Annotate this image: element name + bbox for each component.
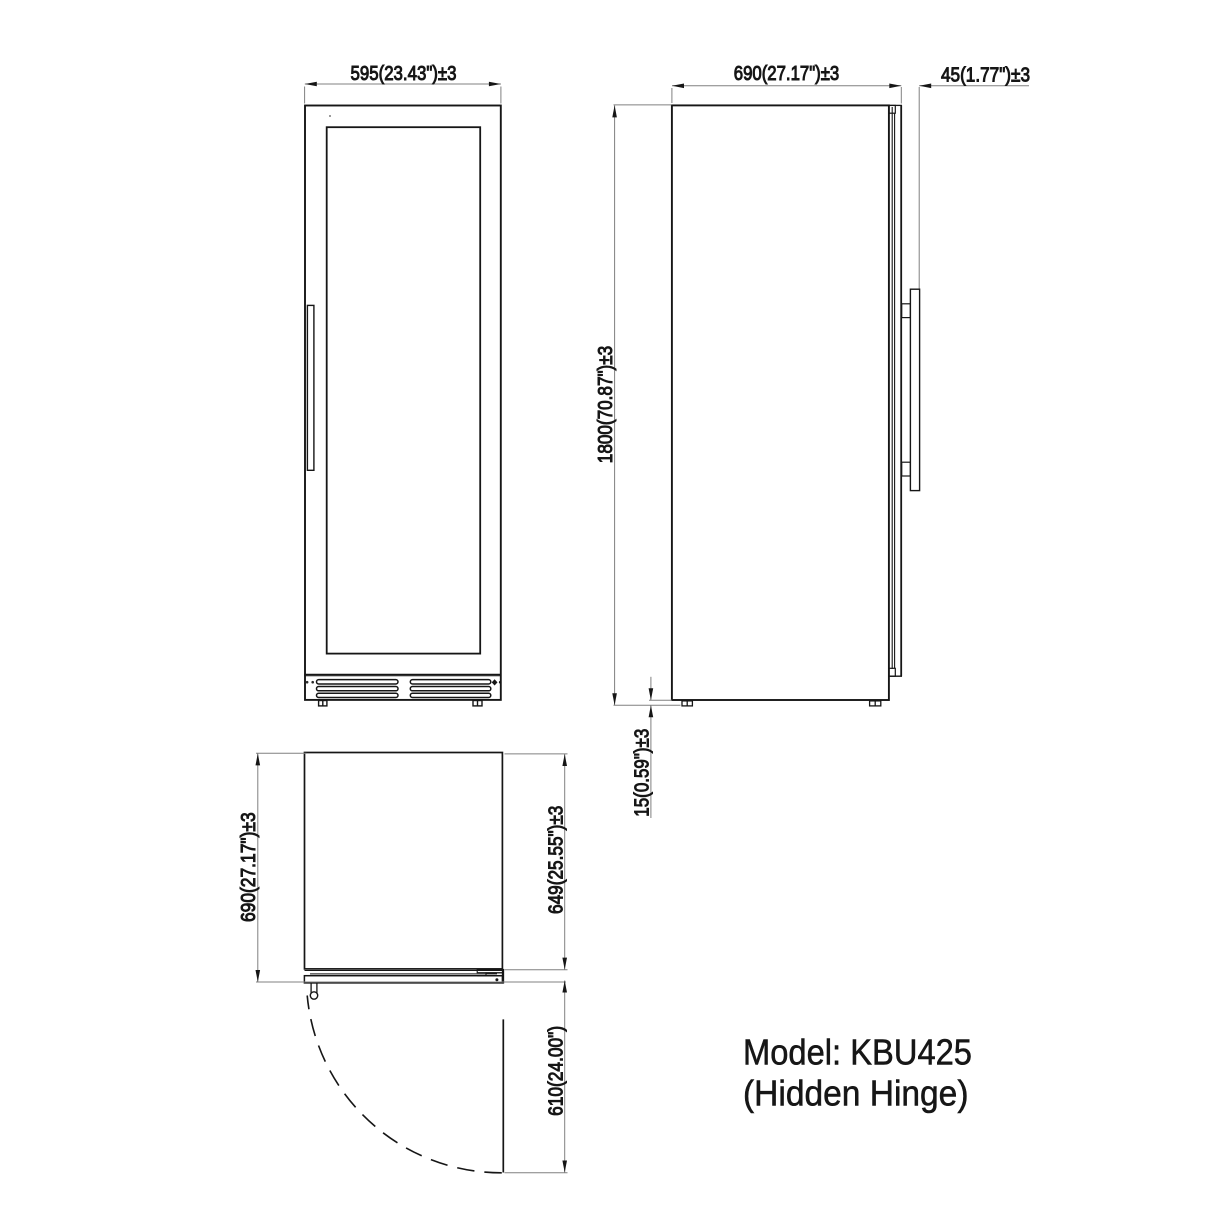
svg-text:690(27.17")±3: 690(27.17")±3 [237,812,260,922]
svg-text:1800(70.87")±3: 1800(70.87")±3 [594,346,617,463]
svg-text:(Hidden Hinge): (Hidden Hinge) [743,1073,969,1114]
svg-text:45(1.77")±3: 45(1.77")±3 [941,65,1030,87]
svg-text:610(24.00"): 610(24.00") [544,1026,567,1116]
svg-text:Model: KBU425: Model: KBU425 [743,1032,972,1073]
svg-text:690(27.17")±3: 690(27.17")±3 [734,63,840,85]
svg-text:595(23.43")±3: 595(23.43")±3 [351,63,457,85]
svg-text:15(0.59")±3: 15(0.59")±3 [631,729,654,817]
svg-text:649(25.55")±3: 649(25.55")±3 [544,806,567,914]
